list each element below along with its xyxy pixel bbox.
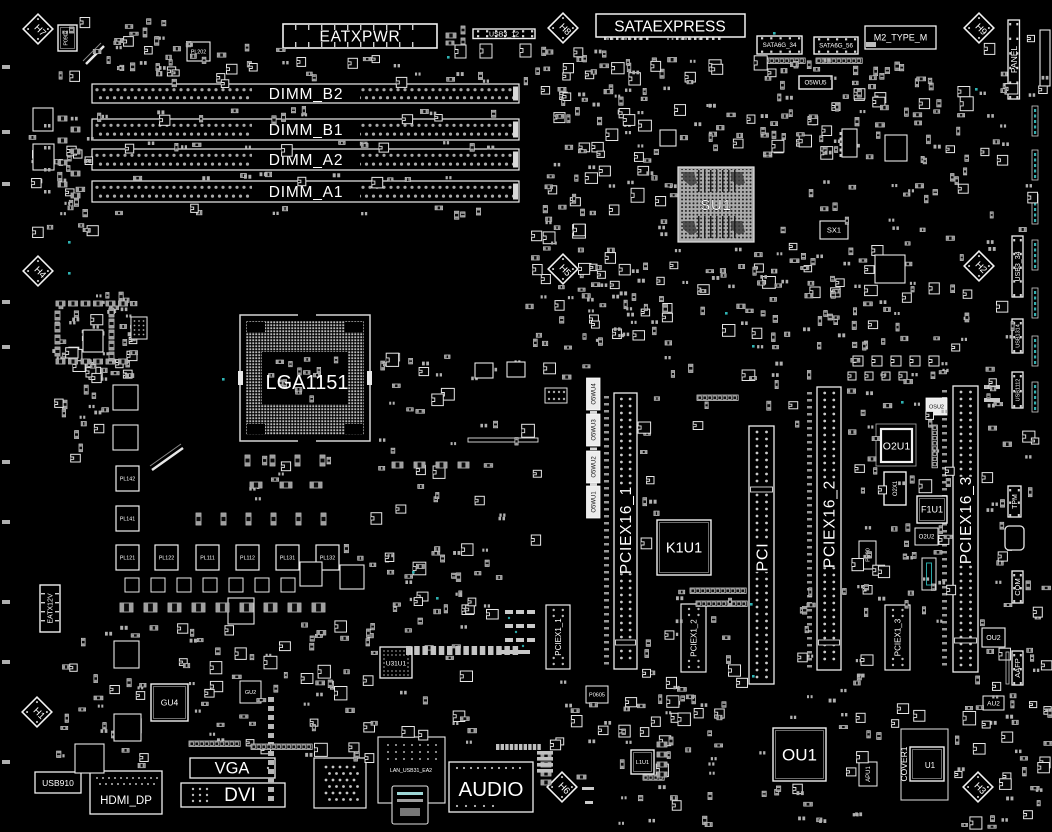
svg-text:PCIEX1_1: PCIEX1_1 xyxy=(554,618,563,656)
svg-text:PCIEX16_2: PCIEX16_2 xyxy=(822,480,839,568)
svg-text:GU4: GU4 xyxy=(161,698,179,708)
svg-text:M2_TYPE_M: M2_TYPE_M xyxy=(874,33,928,43)
svg-text:PL131: PL131 xyxy=(280,555,295,561)
svg-text:PL141: PL141 xyxy=(120,516,135,522)
svg-text:PL122: PL122 xyxy=(159,555,174,561)
svg-text:LGA1151: LGA1151 xyxy=(265,372,348,394)
svg-text:PCI: PCI xyxy=(754,542,771,571)
svg-text:AAFP: AAFP xyxy=(1013,658,1022,678)
svg-text:USB3_12: USB3_12 xyxy=(489,31,519,38)
svg-text:PL132: PL132 xyxy=(320,555,335,561)
svg-text:USB1112: USB1112 xyxy=(1016,379,1022,402)
svg-text:PL111: PL111 xyxy=(200,555,215,561)
svg-text:SATAEXPRESS: SATAEXPRESS xyxy=(614,19,725,36)
svg-text:O5WU4: O5WU4 xyxy=(591,383,597,405)
svg-text:TPM: TPM xyxy=(1012,494,1019,509)
svg-text:PCIEX16_3: PCIEX16_3 xyxy=(958,476,975,564)
svg-text:PL112: PL112 xyxy=(240,555,255,561)
svg-text:DIMM_B1: DIMM_B1 xyxy=(269,122,344,139)
svg-text:USB910: USB910 xyxy=(42,778,74,788)
svg-text:PCIEX1_3: PCIEX1_3 xyxy=(893,618,902,656)
svg-text:EATX12V: EATX12V xyxy=(48,593,55,624)
svg-text:L1U1: L1U1 xyxy=(636,760,649,766)
svg-text:APU1: APU1 xyxy=(866,766,872,782)
svg-text:PL121: PL121 xyxy=(120,555,135,561)
svg-text:DVI: DVI xyxy=(224,785,256,806)
svg-text:OSU2: OSU2 xyxy=(929,405,944,411)
svg-text:PANEL: PANEL xyxy=(1009,46,1019,74)
svg-text:EATXPWR: EATXPWR xyxy=(319,29,400,46)
svg-text:DIMM_A2: DIMM_A2 xyxy=(269,152,344,169)
svg-text:U31U1: U31U1 xyxy=(386,661,407,668)
svg-text:O2U1: O2U1 xyxy=(883,441,911,453)
svg-text:SATA6G_34: SATA6G_34 xyxy=(763,42,797,49)
svg-text:K1U1: K1U1 xyxy=(666,541,702,557)
svg-text:HDMI_DP: HDMI_DP xyxy=(100,795,152,807)
svg-text:PL142: PL142 xyxy=(120,476,135,482)
svg-text:DIMM_A1: DIMM_A1 xyxy=(269,184,344,201)
svg-text:GU2: GU2 xyxy=(245,690,256,696)
svg-text:PCIEX16_1: PCIEX16_1 xyxy=(618,486,635,574)
svg-text:SX1: SX1 xyxy=(827,226,841,235)
svg-text:O2U2: O2U2 xyxy=(919,535,935,541)
svg-text:SATA6G_56: SATA6G_56 xyxy=(819,43,853,50)
svg-text:O5WU5: O5WU5 xyxy=(804,80,827,87)
svg-text:AU2: AU2 xyxy=(987,700,1000,707)
svg-text:OU1: OU1 xyxy=(782,746,817,765)
svg-text:DIMM_B2: DIMM_B2 xyxy=(269,86,344,103)
svg-text:VGA: VGA xyxy=(215,760,250,778)
svg-text:USB1314: USB1314 xyxy=(1016,324,1022,348)
svg-text:COM: COM xyxy=(1013,578,1022,596)
svg-text:P0605: P0605 xyxy=(589,693,605,699)
svg-text:O5WU1: O5WU1 xyxy=(591,491,597,513)
svg-text:PCIEX1_2: PCIEX1_2 xyxy=(689,619,698,657)
svg-text:USB3_34: USB3_34 xyxy=(1015,251,1022,281)
svg-text:COVER1: COVER1 xyxy=(899,746,909,781)
svg-text:O5WU3: O5WU3 xyxy=(591,419,597,441)
svg-text:OU2: OU2 xyxy=(986,635,1001,642)
svg-text:SU1: SU1 xyxy=(700,197,732,214)
svg-text:LAN_USB31_EA2: LAN_USB31_EA2 xyxy=(390,768,432,774)
svg-text:U1: U1 xyxy=(925,761,936,770)
svg-text:F1U1: F1U1 xyxy=(921,505,943,515)
svg-text:O5WU2: O5WU2 xyxy=(591,456,597,478)
svg-text:AUDIO: AUDIO xyxy=(459,778,524,801)
